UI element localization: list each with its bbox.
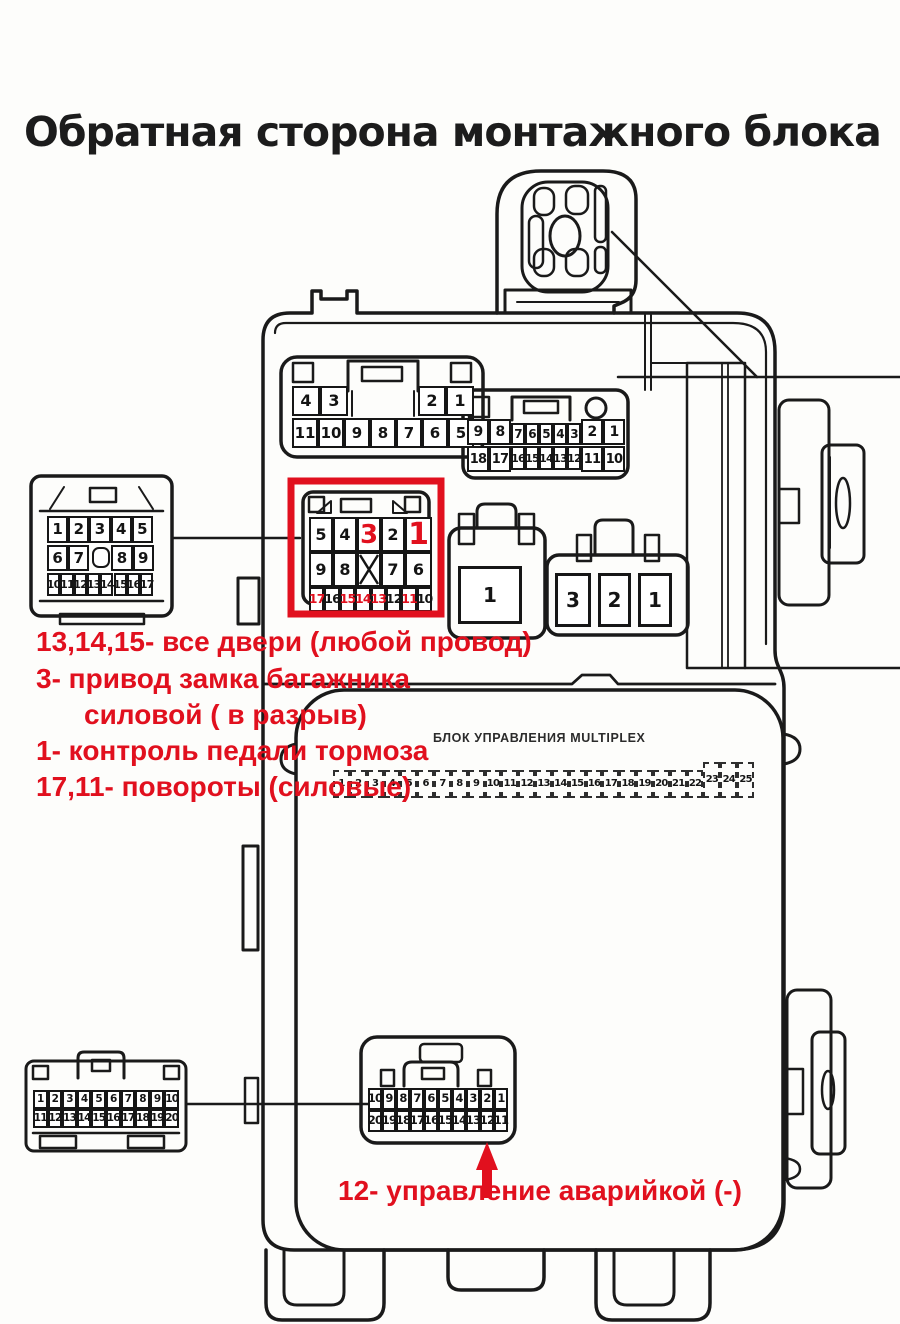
annotation-trunk-line2: силовой ( в разрыв): [84, 700, 367, 731]
crossed-pin-x: [360, 555, 378, 584]
annotation-trunk-line1: 3- привод замка багажника: [36, 664, 410, 695]
page-title: Обратная сторона монтажного блока: [24, 108, 881, 156]
fuse-block-diagram-page: Обратная сторона монтажного блока: [0, 0, 900, 1324]
red-overlay: [0, 0, 900, 1324]
annotation-brake: 1- контроль педали тормоза: [36, 736, 428, 767]
annotation-hazard: 12- управление аварийкой (-): [338, 1176, 742, 1207]
annotation-doors: 13,14,15- все двери (любой провод): [36, 627, 532, 658]
highlight-frame: [291, 481, 441, 614]
annotation-turn: 17,11- повороты (силовые): [36, 772, 411, 803]
